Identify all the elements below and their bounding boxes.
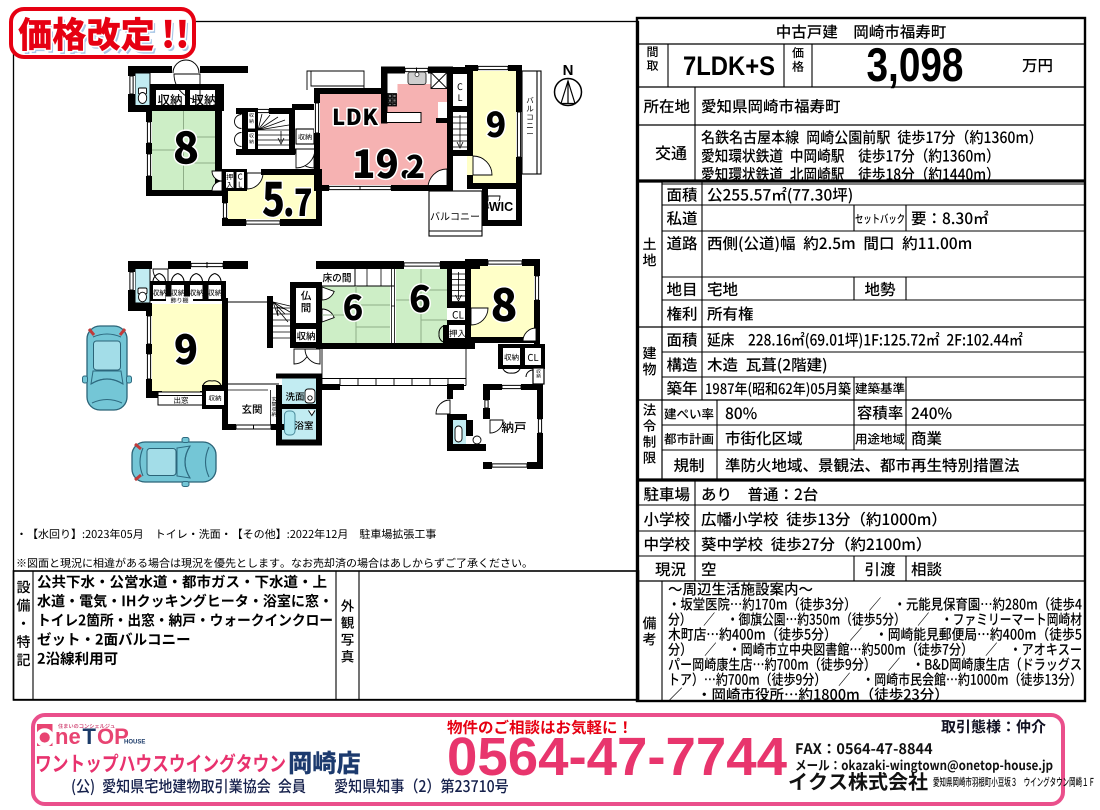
- svg-text:WIC: WIC: [489, 200, 513, 214]
- svg-text:ne: ne: [55, 724, 81, 749]
- svg-text:HOUSE: HOUSE: [124, 740, 145, 746]
- svg-text:T: T: [83, 724, 97, 749]
- svg-text:N: N: [563, 62, 574, 79]
- svg-text:7LDK+S: 7LDK+S: [683, 51, 775, 81]
- svg-text:0564-47-7744: 0564-47-7744: [447, 727, 787, 787]
- svg-text:3,098: 3,098: [867, 38, 964, 91]
